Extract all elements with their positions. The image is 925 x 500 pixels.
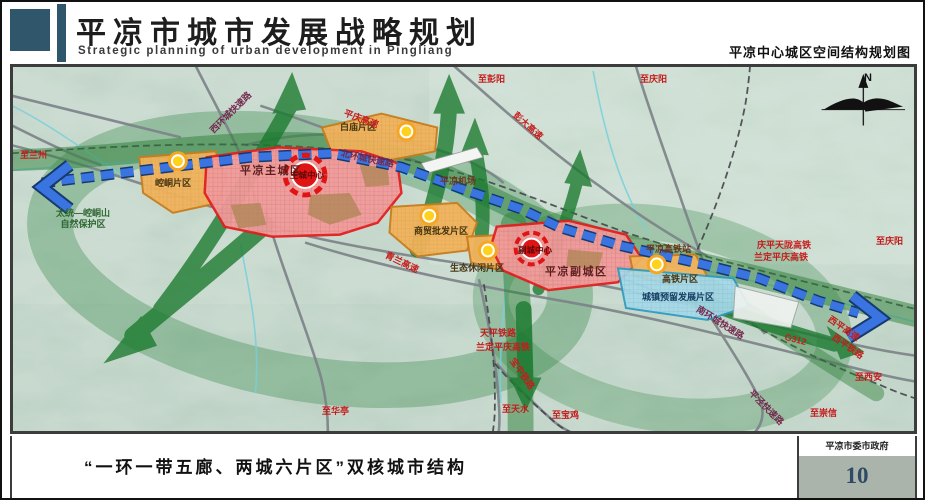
- zone-main-city: [205, 147, 402, 236]
- map-name: 平凉中心城区空间结构规划图: [729, 42, 911, 61]
- footer: “一环一带五廊、两城六片区”双核城市结构 平凉市委市政府 10: [10, 436, 917, 500]
- structure-caption: “一环一带五廊、两城六片区”双核城市结构: [84, 453, 467, 478]
- page-subtitle: Strategic planning of urban development …: [78, 45, 453, 57]
- node-baimiao: [396, 122, 416, 142]
- node-kongtong: [168, 151, 188, 171]
- page-number: 10: [799, 456, 915, 498]
- node-leisure: [478, 241, 498, 261]
- map-area: 至兰州太统—崆峒山 自然保护区崆峒片区平凉主城区主城中心白庙片区西环城快速路北环…: [10, 64, 917, 434]
- map-graphic: [12, 66, 915, 432]
- authority-box: 平凉市委市政府 10: [797, 436, 915, 498]
- authority-name: 平凉市委市政府: [799, 436, 915, 456]
- header-bar-icon: [57, 4, 66, 62]
- node-trade: [419, 206, 439, 226]
- planning-document-page: 平凉市城市发展战略规划 Strategic planning of urban …: [0, 0, 925, 500]
- header-block-icon: [10, 9, 50, 51]
- node-hsr: [647, 254, 667, 274]
- header: 平凉市城市发展战略规划 Strategic planning of urban …: [2, 2, 923, 64]
